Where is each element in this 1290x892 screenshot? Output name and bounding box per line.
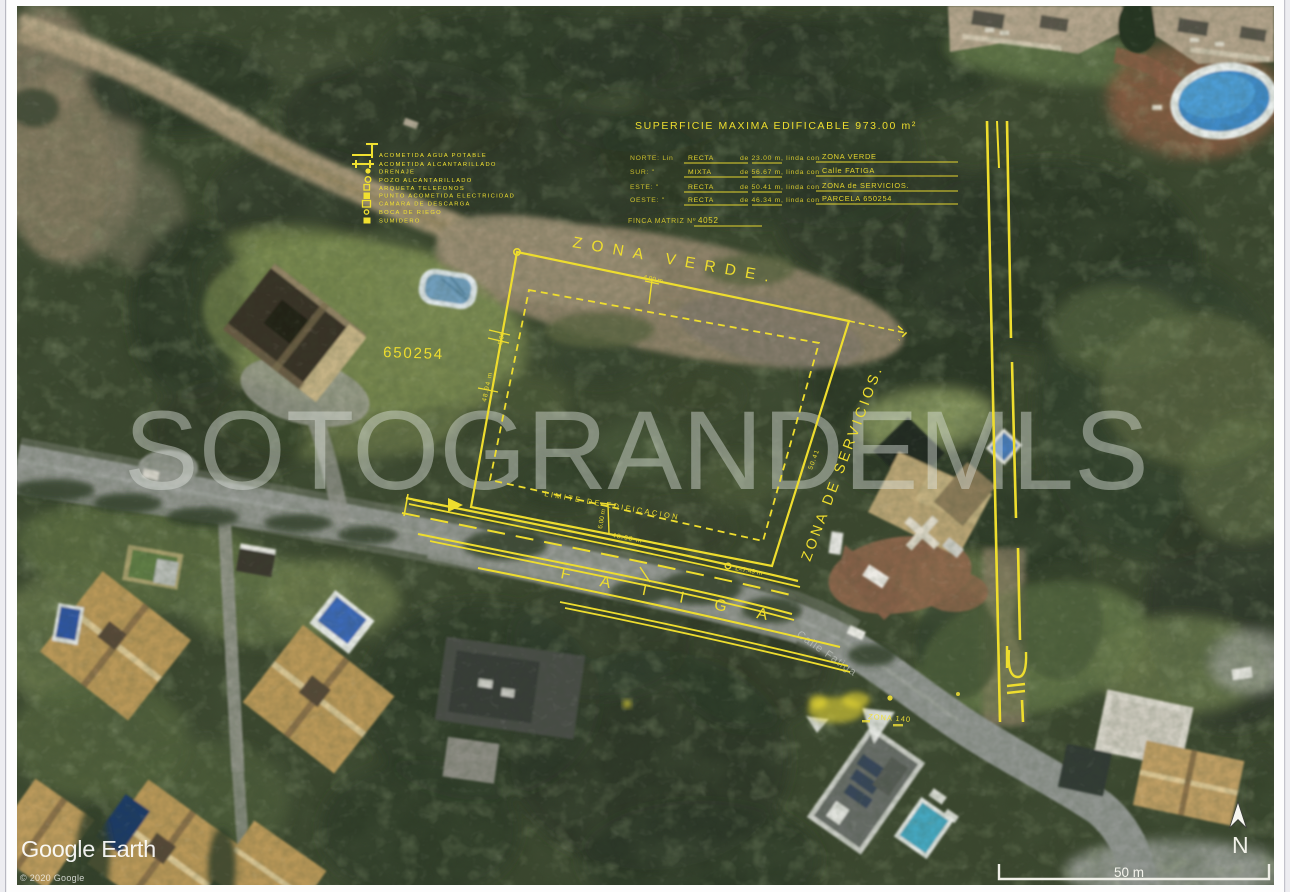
- svg-text:PUNTO ACOMETIDA ELECTRICIDAD: PUNTO ACOMETIDA ELECTRICIDAD: [379, 194, 515, 200]
- svg-text:de 50.41 m, linda con: de 50.41 m, linda con: [740, 184, 820, 191]
- svg-text:ZONA de SERVICIOS.: ZONA de SERVICIOS.: [822, 181, 909, 190]
- svg-text:650254: 650254: [383, 344, 444, 363]
- svg-text:de 23.00 m, linda con: de 23.00 m, linda con: [740, 155, 820, 162]
- svg-text:RECTA: RECTA: [688, 197, 714, 204]
- svg-text:ACOMETIDA AGUA POTABLE: ACOMETIDA AGUA POTABLE: [379, 153, 487, 159]
- svg-text:ARQUETA TELEFONOS: ARQUETA TELEFONOS: [379, 186, 465, 192]
- svg-text:CAMARA DE DESCARGA: CAMARA DE DESCARGA: [379, 202, 471, 208]
- svg-text:OESTE: ": OESTE: ": [630, 197, 665, 204]
- svg-text:MIXTA: MIXTA: [688, 169, 712, 176]
- svg-text:PARCELA 650254: PARCELA 650254: [822, 194, 892, 203]
- svg-text:POZO ALCANTARILLADO: POZO ALCANTARILLADO: [379, 178, 473, 184]
- svg-text:SUPERFICIE MAXIMA EDIFICABLE: SUPERFICIE MAXIMA EDIFICABLE 973.00 m²: [635, 120, 917, 132]
- svg-text:© 2020 Google: © 2020 Google: [20, 873, 85, 883]
- svg-text:4052: 4052: [698, 216, 719, 225]
- svg-text:SUMIDERO: SUMIDERO: [379, 219, 421, 225]
- svg-text:50 m: 50 m: [1114, 865, 1144, 880]
- svg-text:RECTA: RECTA: [688, 184, 714, 191]
- svg-text:de 46.34 m, linda con: de 46.34 m, linda con: [740, 197, 820, 204]
- svg-text:SUR: ": SUR: ": [630, 169, 655, 176]
- svg-text:BOCA DE RIEGO: BOCA DE RIEGO: [379, 210, 442, 216]
- svg-text:N: N: [1232, 832, 1249, 858]
- svg-text:FINCA MATRIZ Nº: FINCA MATRIZ Nº: [628, 218, 696, 225]
- svg-text:ACOMETIDA ALCANTARILLADO: ACOMETIDA ALCANTARILLADO: [379, 162, 497, 168]
- svg-text:Google Earth: Google Earth: [21, 836, 156, 862]
- svg-text:ESTE: ": ESTE: ": [630, 184, 659, 191]
- svg-text:NORTE: Lin: NORTE: Lin: [630, 155, 674, 162]
- svg-text:DRENAJE: DRENAJE: [379, 170, 415, 176]
- svg-text:de 56.67 m, linda con: de 56.67 m, linda con: [740, 169, 820, 176]
- svg-text:RECTA: RECTA: [688, 155, 714, 162]
- svg-text:ZONA VERDE: ZONA VERDE: [822, 152, 877, 161]
- svg-text:Calle FATIGA: Calle FATIGA: [822, 166, 875, 175]
